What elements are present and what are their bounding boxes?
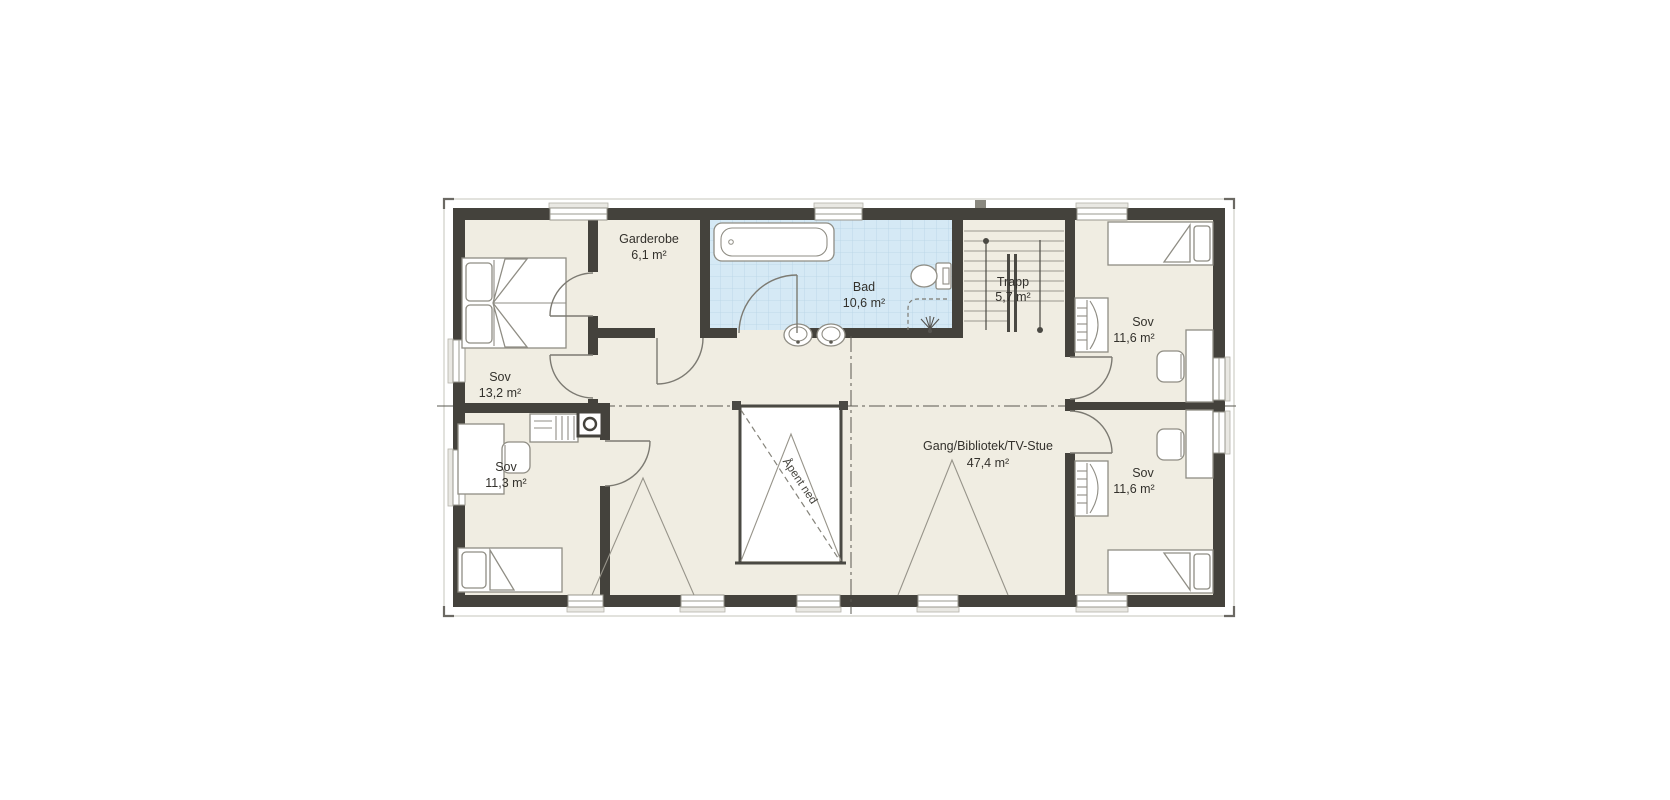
window xyxy=(567,595,604,612)
wall-segment xyxy=(1065,402,1225,410)
wall-segment xyxy=(952,220,963,338)
desk xyxy=(1186,410,1213,478)
room-area-sov-upper-left: 13,2 m² xyxy=(479,386,521,400)
desk xyxy=(1186,330,1213,402)
wall-segment xyxy=(1065,453,1075,595)
room-label-sov-lower-right: Sov xyxy=(1132,466,1154,480)
room-label-garderobe: Garderobe xyxy=(619,232,679,246)
room-area-gang: 47,4 m² xyxy=(967,456,1009,470)
window xyxy=(1076,203,1128,220)
wall-segment xyxy=(588,220,598,272)
vent-mark xyxy=(975,200,986,208)
pillow xyxy=(1194,226,1210,261)
wall-segment xyxy=(600,486,610,595)
walkline-start-dot xyxy=(1037,327,1043,333)
chair xyxy=(1157,429,1184,460)
sink-faucet xyxy=(796,340,800,344)
room-area-bad: 10,6 m² xyxy=(843,296,885,310)
railing-post xyxy=(732,401,741,410)
wardrobe-icon xyxy=(1075,461,1108,516)
window xyxy=(1213,357,1230,401)
toilet-icon xyxy=(911,265,937,287)
sink-faucet xyxy=(829,340,833,344)
wall-segment xyxy=(1065,220,1075,357)
wardrobe-icon xyxy=(1075,298,1108,352)
window xyxy=(917,595,959,612)
window xyxy=(549,203,608,220)
window xyxy=(1076,595,1128,612)
room-label-sov-lower-left: Sov xyxy=(495,460,517,474)
walkline-start-dot xyxy=(983,238,989,244)
chair xyxy=(1157,351,1184,382)
railing-post xyxy=(839,401,848,410)
window xyxy=(680,595,725,612)
pillow xyxy=(462,552,486,588)
pillow xyxy=(1194,554,1210,589)
wall-segment xyxy=(700,220,710,328)
wall-segment xyxy=(588,328,655,338)
floor-plan: Garderobe 6,1 m² Bad 10,6 m² Trapp 5,7 m… xyxy=(0,0,1670,800)
pillow xyxy=(466,263,492,301)
bathtub-icon xyxy=(714,223,834,261)
window xyxy=(814,203,863,220)
room-label-bad: Bad xyxy=(853,280,875,294)
room-area-sov-upper-right: 11,6 m² xyxy=(1113,331,1154,345)
sov-upper-left-furniture xyxy=(462,258,566,348)
room-area-trapp: 5,7 m² xyxy=(995,290,1030,304)
wall-segment xyxy=(700,328,737,338)
pillow xyxy=(466,305,492,343)
room-area-sov-lower-left: 11,3 m² xyxy=(485,476,526,490)
room-label-sov-upper-right: Sov xyxy=(1132,315,1154,329)
room-area-garderobe: 6,1 m² xyxy=(631,248,666,262)
window xyxy=(1213,411,1230,454)
room-label-sov-upper-left: Sov xyxy=(489,370,511,384)
room-area-sov-lower-right: 11,6 m² xyxy=(1113,482,1154,496)
void-open-below xyxy=(741,408,841,561)
window xyxy=(796,595,841,612)
room-label-gang: Gang/Bibliotek/TV-Stue xyxy=(923,439,1053,453)
room-label-trapp: Trapp xyxy=(997,275,1029,289)
chimney-pipe xyxy=(584,418,596,430)
